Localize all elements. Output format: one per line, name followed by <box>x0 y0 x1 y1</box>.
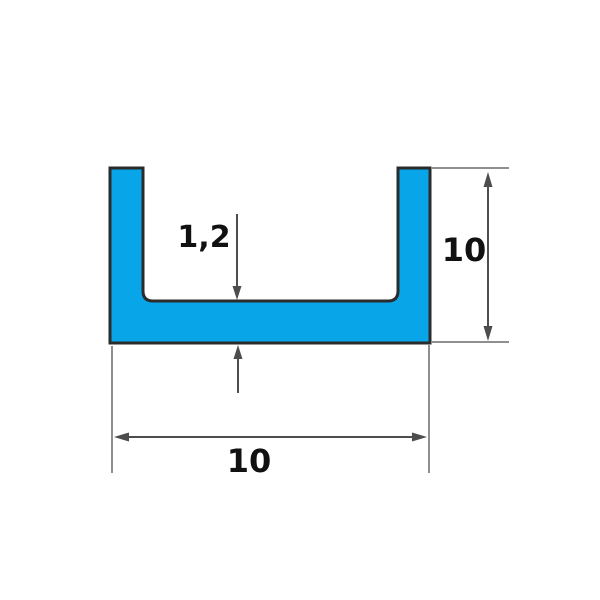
thickness-lower-arrowhead-icon <box>234 345 243 359</box>
width-arrowhead-left-icon <box>114 433 129 442</box>
width-label: 10 <box>227 442 272 480</box>
technical-drawing-svg: 1,2 10 10 <box>0 0 600 600</box>
dimension-height: 10 <box>431 168 509 342</box>
width-arrowhead-right-icon <box>412 433 427 442</box>
thickness-label: 1,2 <box>177 220 230 255</box>
height-arrowhead-bottom-icon <box>484 326 493 341</box>
drawing-canvas: 1,2 10 10 <box>0 0 600 600</box>
dimension-width: 10 <box>112 345 429 480</box>
thickness-upper-arrowhead-icon <box>233 286 242 300</box>
height-label: 10 <box>442 231 487 269</box>
u-channel-profile <box>110 168 430 343</box>
height-arrowhead-top-icon <box>484 172 493 187</box>
